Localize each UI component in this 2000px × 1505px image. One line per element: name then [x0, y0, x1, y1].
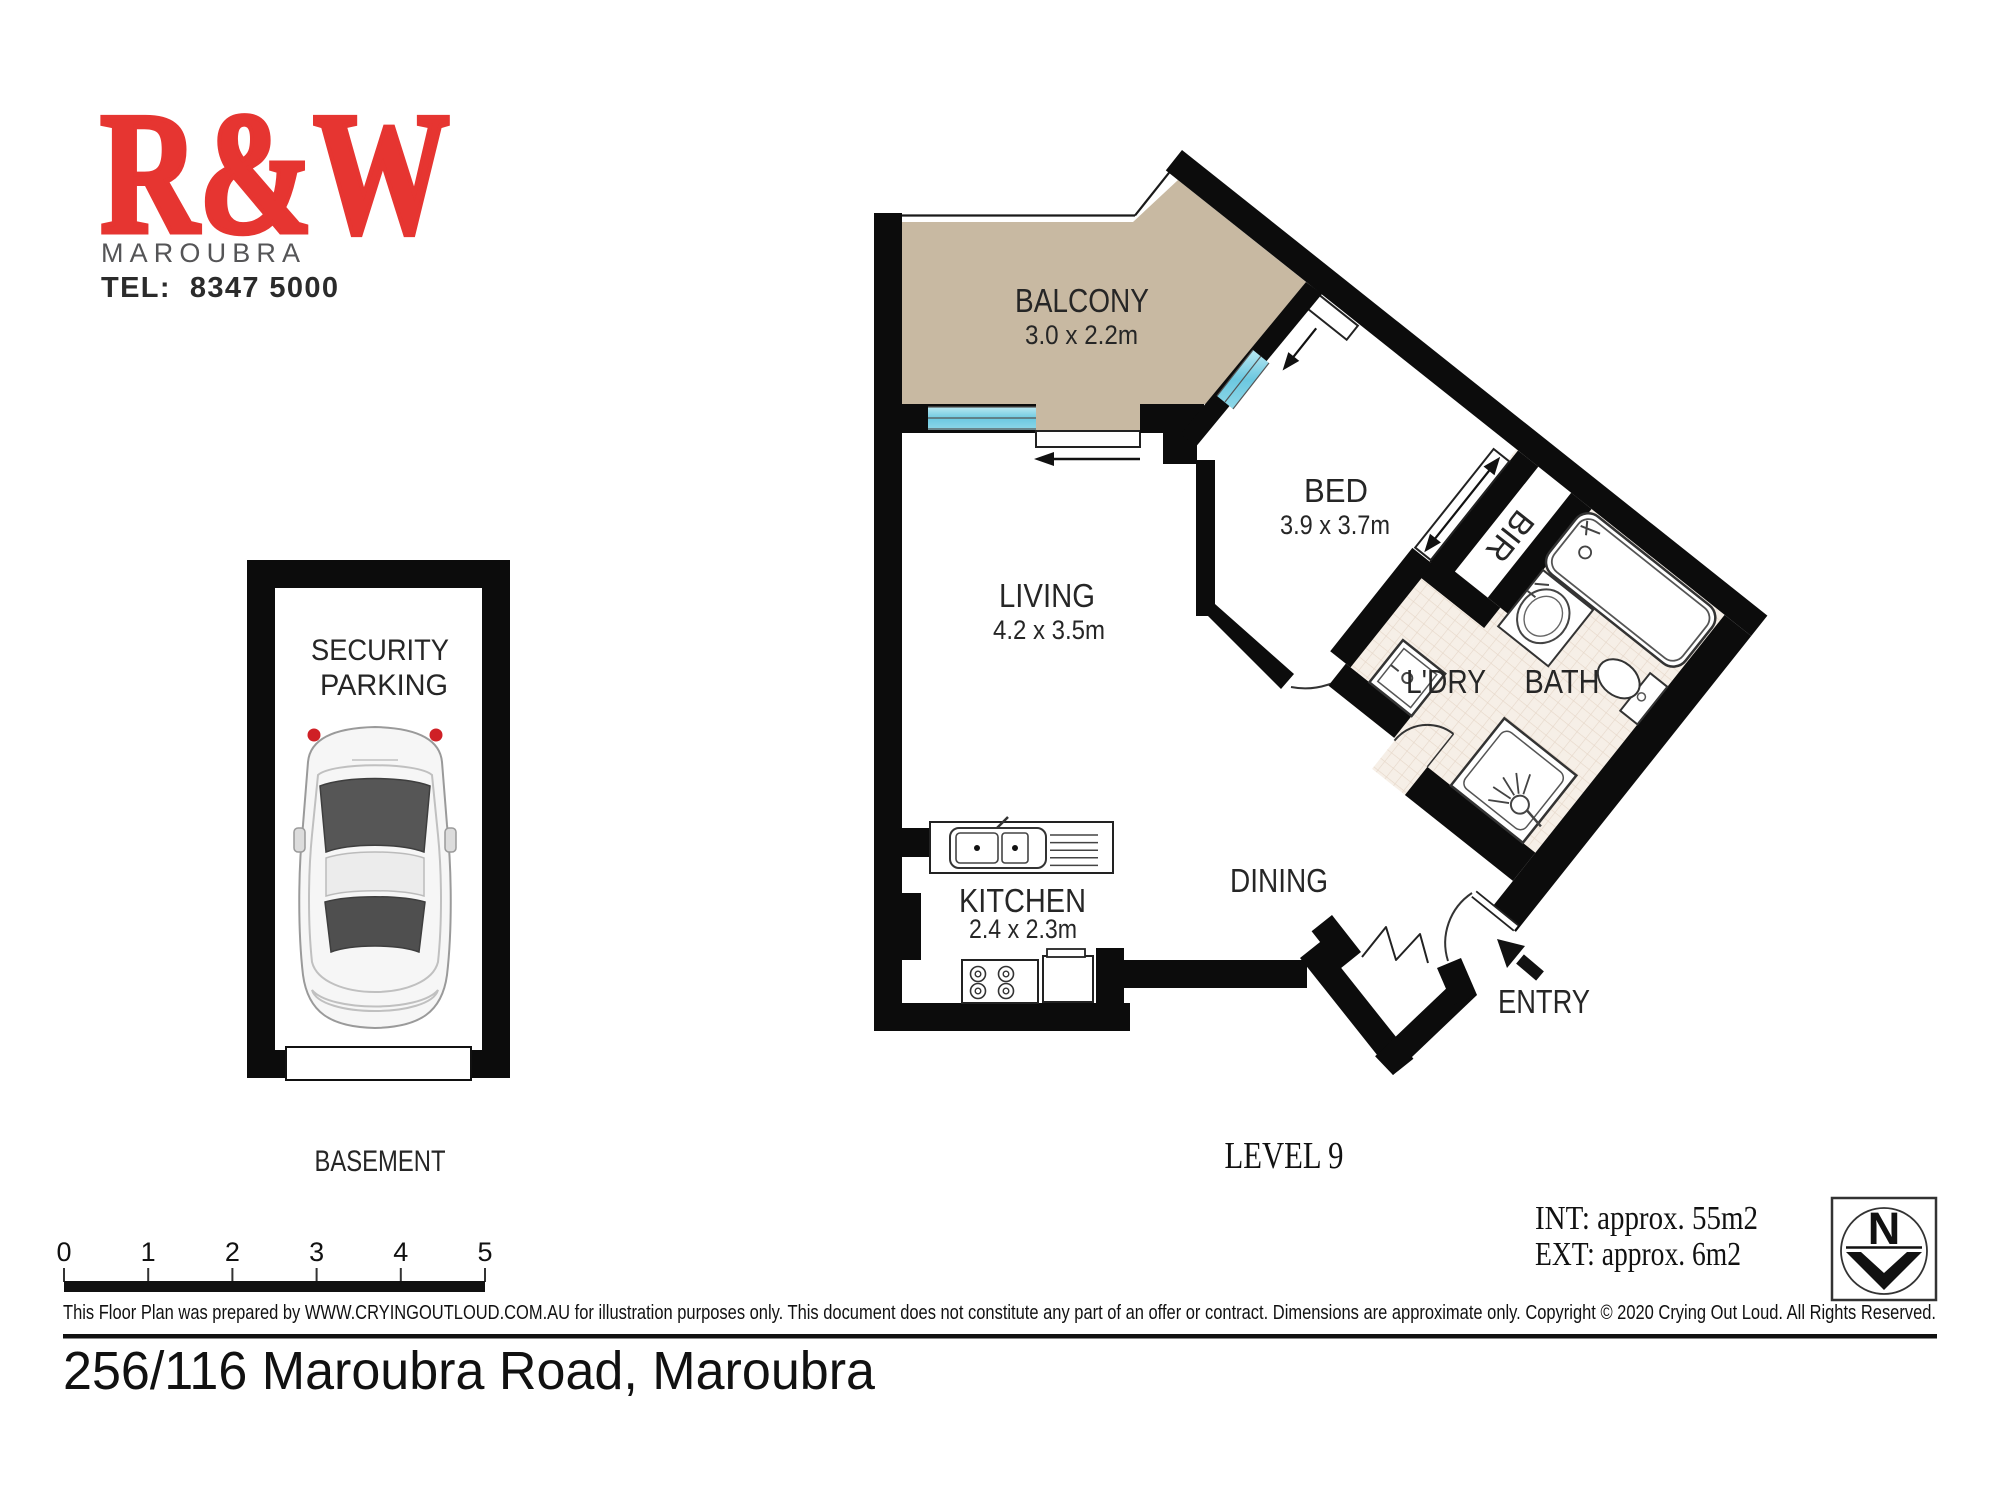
svg-text:DINING: DINING — [1230, 862, 1328, 899]
svg-text:EXT: approx. 6m2: EXT: approx. 6m2 — [1535, 1236, 1741, 1273]
svg-text:256/116 Maroubra Road, Maroubr: 256/116 Maroubra Road, Maroubra — [63, 1341, 876, 1401]
svg-text:LEVEL 9: LEVEL 9 — [1225, 1135, 1344, 1177]
svg-text:3: 3 — [309, 1237, 324, 1267]
svg-text:PARKING: PARKING — [320, 669, 448, 702]
svg-text:4: 4 — [393, 1237, 408, 1267]
svg-text:BALCONY: BALCONY — [1015, 282, 1149, 319]
svg-text:TEL: 8347 5000: TEL: 8347 5000 — [101, 272, 338, 304]
svg-text:2: 2 — [225, 1237, 240, 1267]
svg-text:ENTRY: ENTRY — [1498, 983, 1590, 1020]
svg-text:4.2 x 3.5m: 4.2 x 3.5m — [993, 615, 1105, 645]
svg-text:0: 0 — [56, 1237, 71, 1267]
svg-text:5: 5 — [477, 1237, 492, 1267]
svg-text:2.4 x 2.3m: 2.4 x 2.3m — [969, 914, 1077, 944]
svg-text:This Floor Plan was prepared b: This Floor Plan was prepared by WWW.CRYI… — [63, 1302, 1936, 1324]
svg-text:LIVING: LIVING — [999, 577, 1095, 614]
svg-text:BATH: BATH — [1525, 663, 1600, 700]
svg-text:BED: BED — [1304, 472, 1368, 509]
svg-text:L'DRY: L'DRY — [1406, 663, 1486, 700]
svg-text:INT: approx. 55m2: INT: approx. 55m2 — [1535, 1200, 1758, 1237]
svg-text:SECURITY: SECURITY — [311, 634, 449, 667]
svg-text:3.0 x 2.2m: 3.0 x 2.2m — [1025, 320, 1138, 350]
svg-text:3.9 x 3.7m: 3.9 x 3.7m — [1280, 510, 1390, 540]
svg-text:1: 1 — [141, 1237, 156, 1267]
svg-text:BASEMENT: BASEMENT — [315, 1145, 446, 1178]
